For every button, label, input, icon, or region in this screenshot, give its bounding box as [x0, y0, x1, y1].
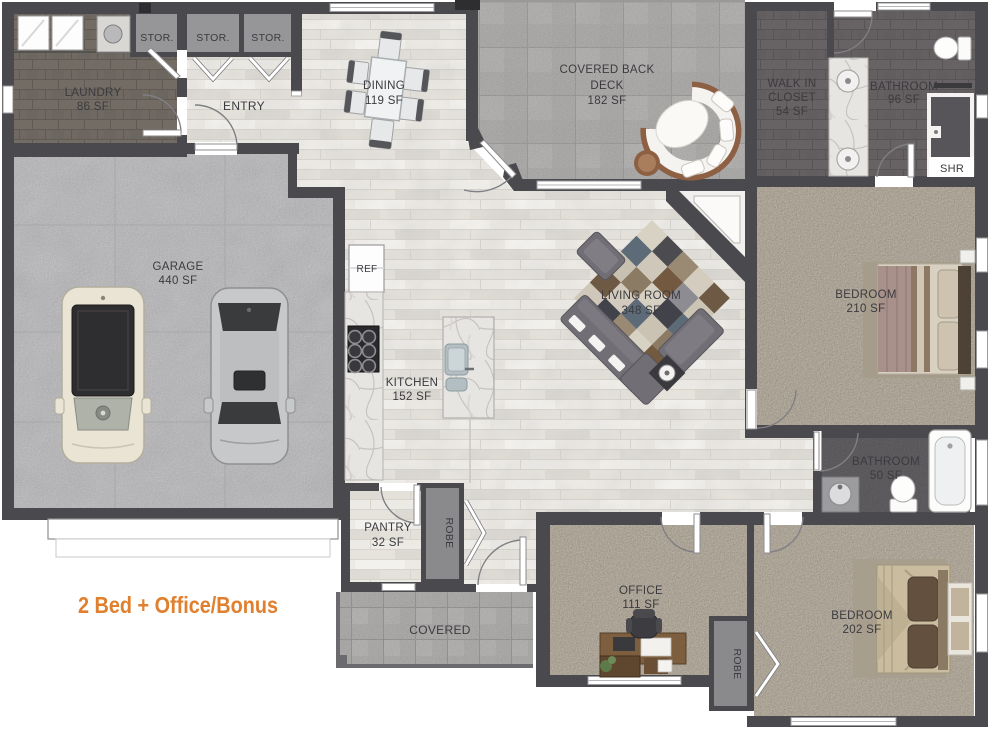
svg-text:32 SF: 32 SF [372, 537, 404, 549]
svg-text:86 SF: 86 SF [77, 101, 109, 113]
svg-text:440 SF: 440 SF [159, 275, 198, 287]
svg-text:SHR: SHR [940, 163, 964, 175]
svg-text:ROBE: ROBE [731, 649, 743, 680]
svg-text:ENTRY: ENTRY [223, 99, 265, 113]
svg-text:WALK IN: WALK IN [768, 78, 817, 90]
svg-text:152 SF: 152 SF [393, 391, 432, 403]
svg-text:210 SF: 210 SF [847, 303, 886, 315]
svg-text:STOR.: STOR. [196, 32, 229, 44]
svg-text:348 SF: 348 SF [622, 305, 661, 317]
svg-text:GARAGE: GARAGE [152, 261, 203, 273]
svg-text:BEDROOM: BEDROOM [835, 289, 897, 301]
svg-text:202 SF: 202 SF [843, 624, 882, 636]
svg-text:119 SF: 119 SF [365, 95, 403, 107]
svg-text:54 SF: 54 SF [776, 106, 808, 118]
svg-text:50 SF: 50 SF [870, 470, 902, 482]
svg-text:KITCHEN: KITCHEN [386, 377, 439, 389]
svg-text:REF: REF [357, 264, 378, 275]
svg-text:182 SF: 182 SF [588, 95, 627, 107]
svg-text:DECK: DECK [590, 80, 623, 92]
svg-text:LAUNDRY: LAUNDRY [65, 87, 122, 99]
svg-text:BATHROOM: BATHROOM [852, 456, 920, 468]
svg-text:BATHROOM: BATHROOM [870, 81, 938, 93]
svg-text:BEDROOM: BEDROOM [831, 610, 893, 622]
svg-text:CLOSET: CLOSET [768, 92, 816, 104]
svg-text:PANTRY: PANTRY [364, 522, 411, 534]
svg-text:STOR.: STOR. [251, 32, 284, 44]
svg-text:ROBE: ROBE [443, 518, 455, 549]
svg-text:DINING: DINING [363, 80, 405, 92]
svg-text:STOR.: STOR. [140, 32, 173, 44]
svg-text:96 SF: 96 SF [888, 94, 920, 106]
svg-text:111 SF: 111 SF [622, 599, 659, 611]
svg-text:COVERED BACK: COVERED BACK [560, 64, 655, 76]
svg-text:LIVING ROOM: LIVING ROOM [601, 290, 681, 302]
svg-text:COVERED: COVERED [409, 623, 470, 637]
svg-text:2 Bed + Office/Bonus: 2 Bed + Office/Bonus [78, 592, 278, 618]
svg-text:OFFICE: OFFICE [619, 585, 663, 597]
